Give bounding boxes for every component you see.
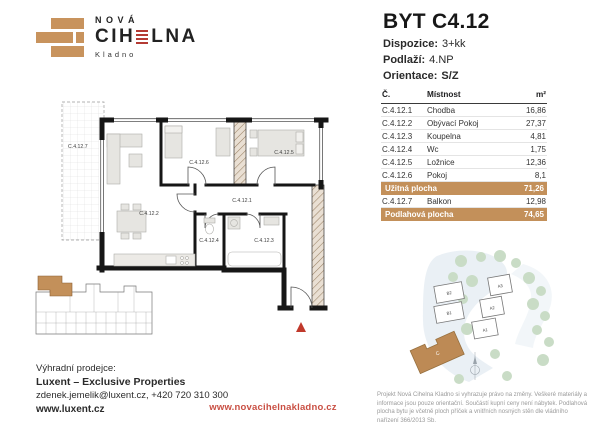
brick-logo-icon: [36, 18, 84, 57]
row-area: 12,98: [511, 197, 547, 206]
logo-text: NOVÁ CIHLNA Kladno: [95, 15, 198, 59]
podlazi-value: 4.NP: [429, 54, 453, 66]
wc-label: C.4.12.4: [199, 238, 219, 244]
row-room: Ložnice: [427, 158, 511, 167]
row-room: Pokoj: [427, 171, 511, 180]
row-area: 16,86: [511, 106, 547, 115]
row-area: 1,75: [511, 145, 547, 154]
table-row: C.4.12.3Koupelna4,81: [381, 130, 547, 143]
logo-nova: NOVÁ: [95, 15, 198, 25]
bath-label: C.4.12.3: [254, 238, 274, 244]
podlazi-label: Podlaží:: [383, 54, 425, 66]
logo: NOVÁ CIHLNA Kladno: [36, 15, 198, 59]
bedroom-label: C.4.12.5: [274, 150, 294, 156]
row-room: Koupelna: [427, 132, 511, 141]
row-room: Balkon: [427, 197, 511, 206]
seller-name: Luxent – Exclusive Properties: [36, 376, 228, 390]
seller-block: Výhradní prodejce: Luxent – Exclusive Pr…: [36, 362, 228, 416]
seller-label: Výhradní prodejce:: [36, 362, 228, 376]
table-row: C.4.12.5Ložnice12,36: [381, 156, 547, 169]
room-label: C.4.12.6: [189, 160, 209, 166]
row-room: Wc: [427, 145, 511, 154]
orientace-label: Orientace:: [383, 70, 437, 82]
logo-cihelna: CIHLNA: [95, 26, 198, 48]
table-row: C.4.12.4Wc1,75: [381, 143, 547, 156]
shaft-hatch: [234, 122, 246, 185]
unit-header: BYT C4.12 Dispozice:3+kk Podlaží:4.NP Or…: [383, 10, 583, 82]
table-row: C.4.12.6Pokoj8,1: [381, 169, 547, 182]
table-header: Č. Místnost m²: [381, 88, 547, 104]
row-no: C.4.12.5: [381, 158, 427, 167]
orientace-value: S/Z: [441, 70, 458, 82]
logo-cihelna-left: CIH: [95, 26, 135, 48]
unit-title: BYT C4.12: [383, 10, 583, 34]
usable-area-value: 71,26: [524, 184, 544, 193]
row-no: C.4.12.6: [381, 171, 427, 180]
row-room: Obývací Pokoj: [427, 119, 511, 128]
seller-contact[interactable]: zdenek.jemelik@luxent.cz, +420 720 310 3…: [36, 389, 228, 403]
balcony-area: C.4.12.7: [62, 102, 104, 240]
floor-plan: C.4.12.7: [28, 92, 363, 354]
row-area: 27,37: [511, 119, 547, 128]
row-area: 4,81: [511, 132, 547, 141]
building-overview: [36, 276, 152, 334]
usable-area-label: Užitná plocha: [385, 184, 524, 193]
dispozice-label: Dispozice:: [383, 38, 438, 50]
logo-city: Kladno: [95, 50, 198, 59]
row-no: C.4.12.4: [381, 145, 427, 154]
row-no: C.4.12.3: [381, 132, 427, 141]
dispozice-line: Dispozice:3+kk: [383, 38, 583, 50]
usable-area-row: Užitná plocha71,26: [381, 182, 547, 195]
row-no: C.4.12.1: [381, 106, 427, 115]
doors: [177, 167, 312, 308]
floor-area-label: Podlahová plocha: [385, 210, 524, 219]
entrance-arrow-icon: [296, 322, 306, 332]
table-row-balcony: C.4.12.7Balkon12,98: [381, 195, 547, 208]
seller-website-link[interactable]: www.luxent.cz: [36, 403, 228, 417]
living-label: C.4.12.2: [139, 211, 159, 217]
col-area: m²: [511, 90, 547, 99]
project-website-link[interactable]: www.novacihelnakladno.cz: [208, 402, 338, 413]
party-wall-hatch: [312, 185, 324, 308]
dispozice-value: 3+kk: [442, 38, 466, 50]
col-no: Č.: [381, 90, 427, 99]
row-no: C.4.12.7: [381, 197, 427, 206]
balcony-label: C.4.12.7: [68, 144, 88, 150]
orientace-line: Orientace:S/Z: [383, 70, 583, 82]
room-table: Č. Místnost m² C.4.12.1Chodba16,86 C.4.1…: [381, 88, 547, 221]
site-plan: B2 B1 A3 A2 A1 C: [403, 236, 600, 386]
table-row: C.4.12.2Obývací Pokoj27,37: [381, 117, 547, 130]
floor-area-value: 74,65: [524, 210, 544, 219]
row-room: Chodba: [427, 106, 511, 115]
disclaimer-text: Projekt Nová Cihelna Kladno si vyhrazuje…: [377, 391, 589, 426]
hall-label: C.4.12.1: [232, 198, 252, 204]
podlazi-line: Podlaží:4.NP: [383, 54, 583, 66]
table-row: C.4.12.1Chodba16,86: [381, 104, 547, 117]
floor-area-row: Podlahová plocha74,65: [381, 208, 547, 221]
row-area: 12,36: [511, 158, 547, 167]
row-no: C.4.12.2: [381, 119, 427, 128]
col-room: Místnost: [427, 90, 511, 99]
red-e-bars-icon: [136, 30, 148, 44]
furniture: [107, 126, 304, 266]
row-area: 8,1: [511, 171, 547, 180]
logo-cihelna-right: LNA: [151, 26, 198, 48]
